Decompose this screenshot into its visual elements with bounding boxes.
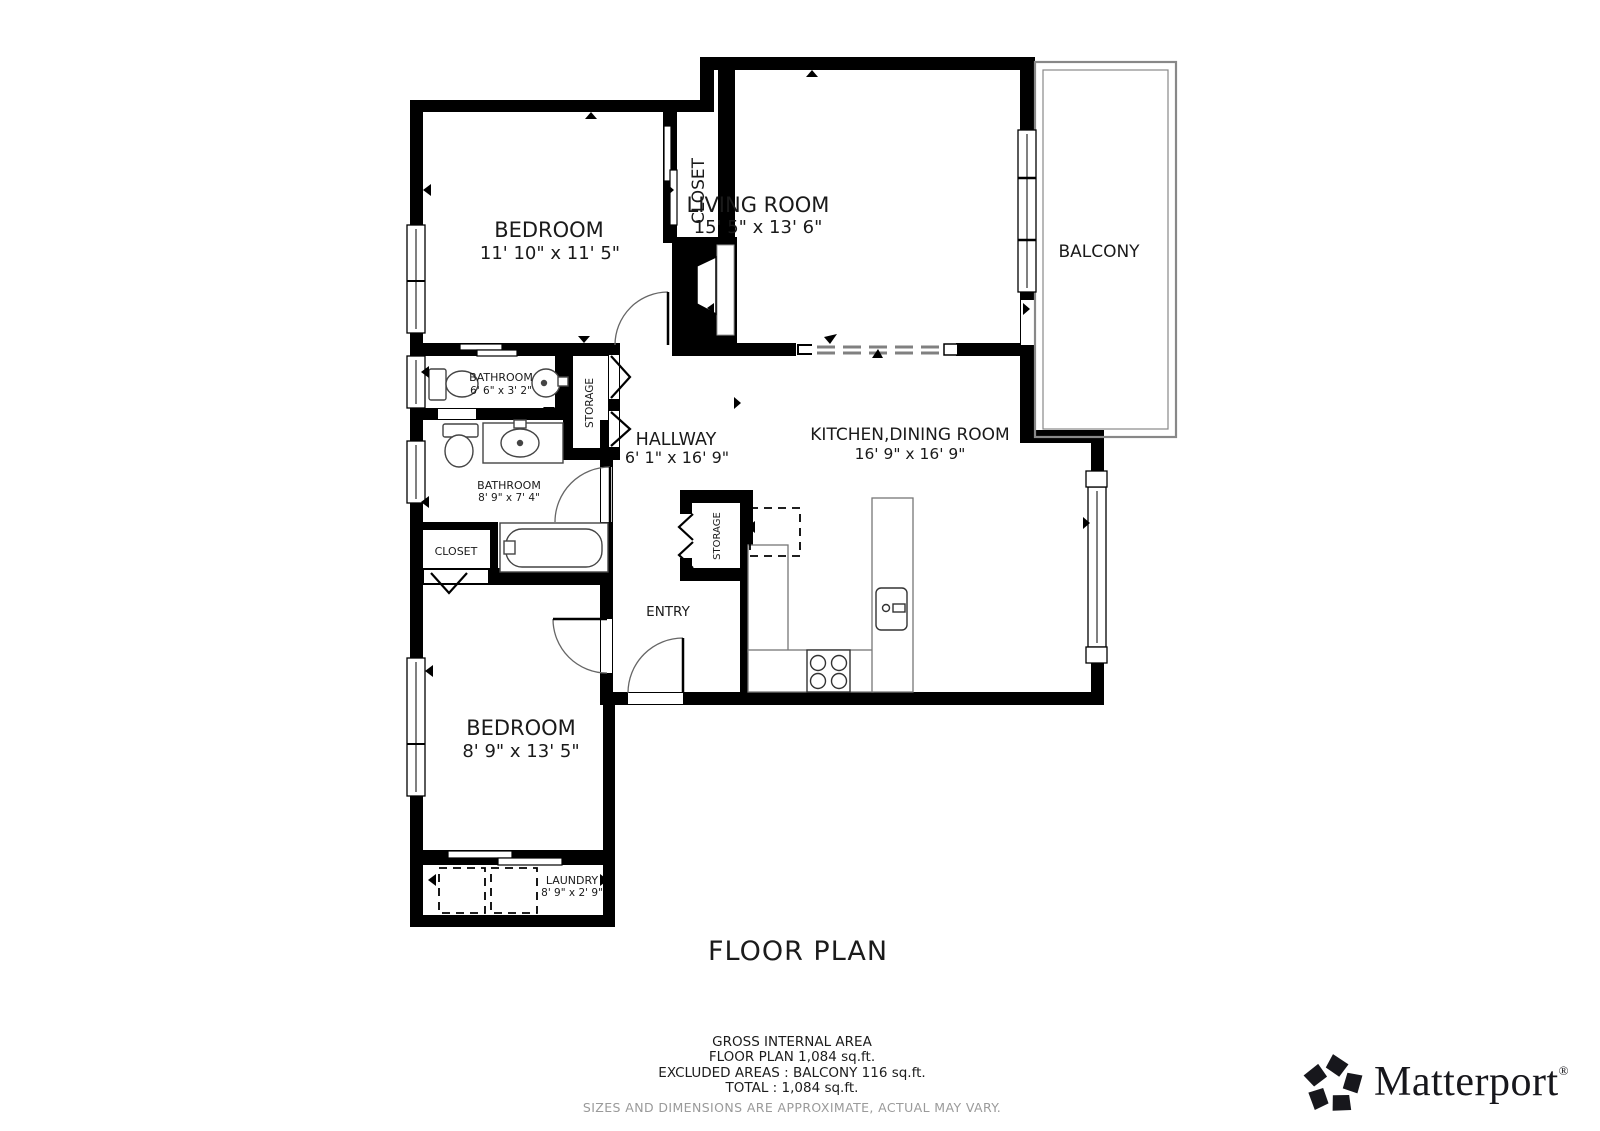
agent-business-card: TEAM TRUE BLUE RE/MAX CITY REALTY Tony B…	[0, 1000, 230, 1125]
area-summary: GROSS INTERNAL AREA FLOOR PLAN 1,084 sq.…	[583, 1035, 1001, 1115]
room-dims: 16' 9" x 16' 9"	[855, 445, 966, 463]
room-dims: 8' 9" x 7' 4"	[478, 492, 540, 504]
room-name: STORAGE	[584, 378, 596, 428]
matterport-wordmark: Matterport®	[1374, 1058, 1569, 1106]
room-label-storage-1: STORAGE	[584, 378, 596, 428]
room-label-entry: ENTRY	[646, 604, 690, 620]
matterport-pinwheel-icon	[1300, 1052, 1366, 1118]
room-dims: 6' 1" x 16' 9"	[625, 448, 729, 467]
toilet-bowl-icon	[445, 435, 473, 467]
room-label-kitchen-dining: KITCHEN,DINING ROOM 16' 9" x 16' 9"	[810, 425, 1009, 463]
kitchen-sink-icon	[876, 588, 907, 630]
excluded-areas: EXCLUDED AREAS : BALCONY 116 sq.ft.	[583, 1066, 1001, 1081]
room-label-closet-2: CLOSET	[435, 545, 478, 558]
room-dims: 6' 6" x 3' 2"	[470, 385, 532, 397]
room-label-hallway: HALLWAY 6' 1" x 16' 9"	[625, 430, 729, 467]
room-name: BALCONY	[1058, 242, 1140, 262]
closet-angled-door	[697, 257, 716, 314]
registered-mark: ®	[1559, 1063, 1569, 1078]
room-label-bedroom-1: BEDROOM 11' 10" x 11' 5"	[480, 218, 620, 264]
washer-dashed-icon	[439, 868, 485, 913]
kitchen-fixtures	[747, 498, 913, 692]
room-name: BATHROOM	[477, 479, 541, 492]
room-dims: 15' 5" x 13' 6"	[694, 217, 823, 238]
floor-plan-page: BEDROOM 11' 10" x 11' 5" CLOSET LIVING R…	[0, 0, 1600, 1131]
room-divider-dashed	[798, 334, 970, 358]
gross-internal-area-label: GROSS INTERNAL AREA	[583, 1035, 1001, 1050]
matterport-text: Matterport	[1374, 1059, 1559, 1105]
room-name: CLOSET	[435, 545, 478, 558]
room-label-bathroom-1: BATHROOM 6' 6" x 3' 2"	[469, 371, 533, 397]
stove-icon	[807, 650, 850, 692]
dryer-dashed-icon	[491, 868, 537, 913]
room-dims: 8' 9" x 2' 9"	[541, 887, 603, 899]
room-name: BATHROOM	[469, 371, 533, 384]
room-label-bedroom-2: BEDROOM 8' 9" x 13' 5"	[462, 716, 579, 762]
room-name: HALLWAY	[636, 430, 717, 450]
room-label-living-room: LIVING ROOM 15' 5" x 13' 6"	[687, 193, 830, 238]
room-label-laundry: LAUNDRY 8' 9" x 2' 9"	[541, 874, 603, 899]
floor-plan-area: FLOOR PLAN 1,084 sq.ft.	[583, 1050, 1001, 1065]
room-label-balcony: BALCONY	[1058, 242, 1140, 262]
room-name: BEDROOM	[494, 218, 604, 242]
toilet-icon	[429, 369, 446, 400]
page-title: FLOOR PLAN	[708, 936, 888, 967]
room-name: LAUNDRY	[546, 874, 599, 887]
disclaimer-text: SIZES AND DIMENSIONS ARE APPROXIMATE, AC…	[583, 1100, 1001, 1115]
room-dims: 8' 9" x 13' 5"	[462, 741, 579, 762]
matterport-logo: Matterport®	[1300, 1050, 1600, 1122]
room-label-bathroom-2: BATHROOM 8' 9" x 7' 4"	[477, 479, 541, 504]
room-name: ENTRY	[646, 604, 690, 620]
room-name: LIVING ROOM	[687, 193, 830, 217]
room-name: STORAGE	[712, 512, 723, 560]
room-name: BEDROOM	[466, 716, 576, 740]
room-name: KITCHEN,DINING ROOM	[810, 425, 1009, 445]
room-label-storage-2: STORAGE	[712, 512, 723, 560]
total-area: TOTAL : 1,084 sq.ft.	[583, 1081, 1001, 1096]
room-dims: 11' 10" x 11' 5"	[480, 243, 620, 264]
laundry-fixtures	[439, 868, 537, 913]
